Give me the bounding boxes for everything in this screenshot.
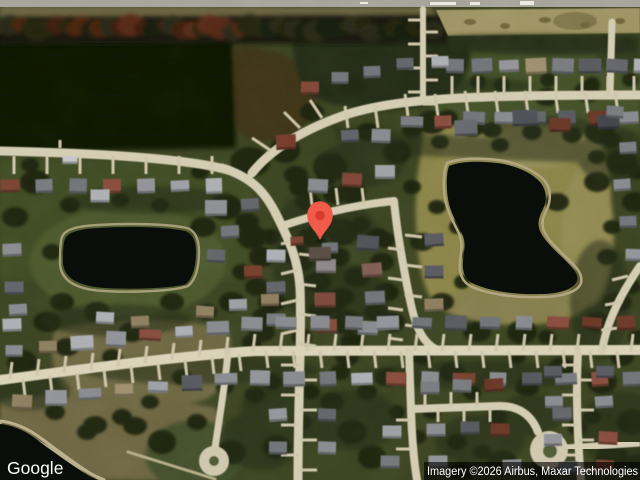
svg-text:Imagery ©2026 Airbus, Maxar Te: Imagery ©2026 Airbus, Maxar Technologies	[427, 466, 638, 478]
svg-text:Google: Google	[7, 458, 63, 478]
